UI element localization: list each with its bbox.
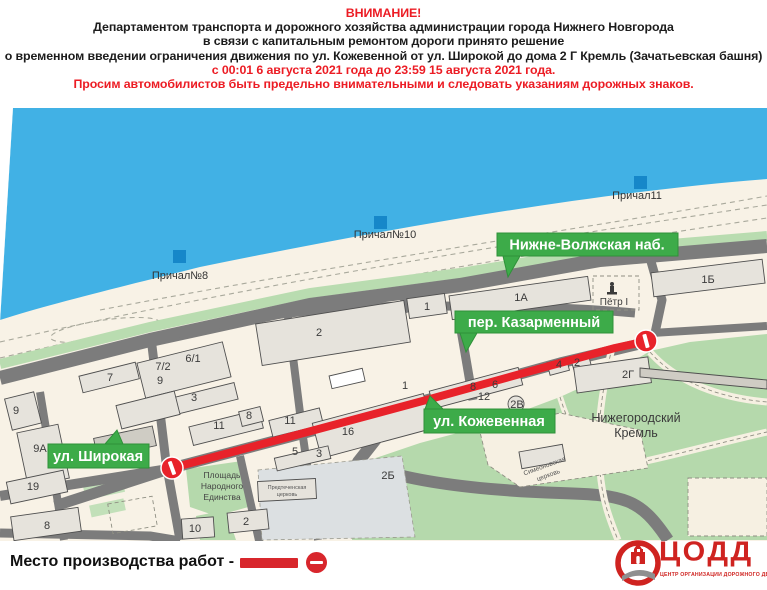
road-closure-notice: ВНИМАНИЕ! Департаментом транспорта и дор…: [0, 0, 767, 590]
building-number: 19: [27, 481, 39, 493]
building-number: 9: [13, 405, 19, 417]
codd-logo-subtitle: ЦЕНТР ОРГАНИЗАЦИИ ДОРОЖНОГО ДВИЖЕНИЯ: [660, 572, 767, 578]
building-number: 9А: [33, 443, 47, 455]
city-map: Причал№8 Причал№10 Причал11 1А 1Б 1 2 7 …: [0, 0, 767, 590]
building-number: 2Б: [381, 470, 394, 482]
pier-11-label: Причал11: [612, 190, 662, 202]
building-number: 5: [292, 446, 298, 458]
legend-closure-line: [240, 558, 298, 568]
pier-10-marker: [374, 216, 387, 229]
svg-text:ул. Кожевенная: ул. Кожевенная: [433, 414, 545, 430]
building-number: 9: [157, 375, 163, 387]
square-label-line3: Единства: [203, 492, 241, 502]
building-number: 8: [246, 410, 252, 422]
building-number: 2Г: [622, 369, 634, 381]
building-number: 1Б: [701, 274, 714, 286]
building-number: 1А: [514, 292, 528, 304]
building-number: 2: [316, 327, 322, 339]
building-number: 12: [478, 391, 490, 403]
building-number: 7: [107, 372, 113, 384]
building-number: 1: [402, 380, 408, 392]
codd-logo-emblem-icon: [614, 539, 662, 587]
building-number: 16: [342, 426, 354, 438]
svg-text:ул. Широкая: ул. Широкая: [53, 449, 143, 465]
kremlin-label-line2: Кремль: [614, 426, 658, 440]
pier-8-label: Причал№8: [152, 270, 208, 282]
pier-11-marker: [634, 176, 647, 189]
building-number: 11: [284, 415, 295, 427]
church-predtechenskaya-line1: Предтеченская: [268, 485, 307, 491]
building-number: 8: [44, 520, 50, 532]
kremlin-label-line1: Нижегородский: [591, 411, 680, 425]
codd-logo-name: ЦОДД: [659, 537, 754, 568]
building-number: 3: [316, 448, 322, 460]
no-entry-icon: [306, 552, 327, 573]
square-label-line1: Площадь: [203, 470, 241, 480]
building-number: 2: [574, 357, 580, 369]
building-number: 6/1: [185, 353, 200, 365]
svg-text:Нижне-Волжская наб.: Нижне-Волжская наб.: [509, 238, 664, 254]
codd-logo: ЦОДД ЦЕНТР ОРГАНИЗАЦИИ ДОРОЖНОГО ДВИЖЕНИ…: [605, 539, 767, 589]
church-predtechenskaya-line2: церковь: [277, 492, 298, 498]
square-label-line2: Народного: [201, 481, 243, 491]
building-number: 11: [213, 420, 224, 432]
building-number: 1: [424, 301, 430, 313]
building-number: 7/2: [155, 361, 170, 373]
no-entry-sign-east: [635, 330, 657, 352]
building-number: 4: [556, 359, 562, 371]
building-number: 6: [492, 379, 498, 391]
pier-10-label: Причал№10: [354, 229, 416, 241]
building-number: 2: [243, 516, 249, 528]
building-number: 10: [189, 523, 201, 535]
building-number: 3: [191, 392, 197, 404]
svg-text:пер. Казарменный: пер. Казарменный: [468, 315, 600, 331]
petr-label: Пётр I: [600, 297, 628, 308]
no-entry-sign-west: [161, 457, 183, 479]
pier-8-marker: [173, 250, 186, 263]
legend-label: Место производства работ -: [10, 553, 234, 571]
building-number: 8: [470, 381, 476, 393]
